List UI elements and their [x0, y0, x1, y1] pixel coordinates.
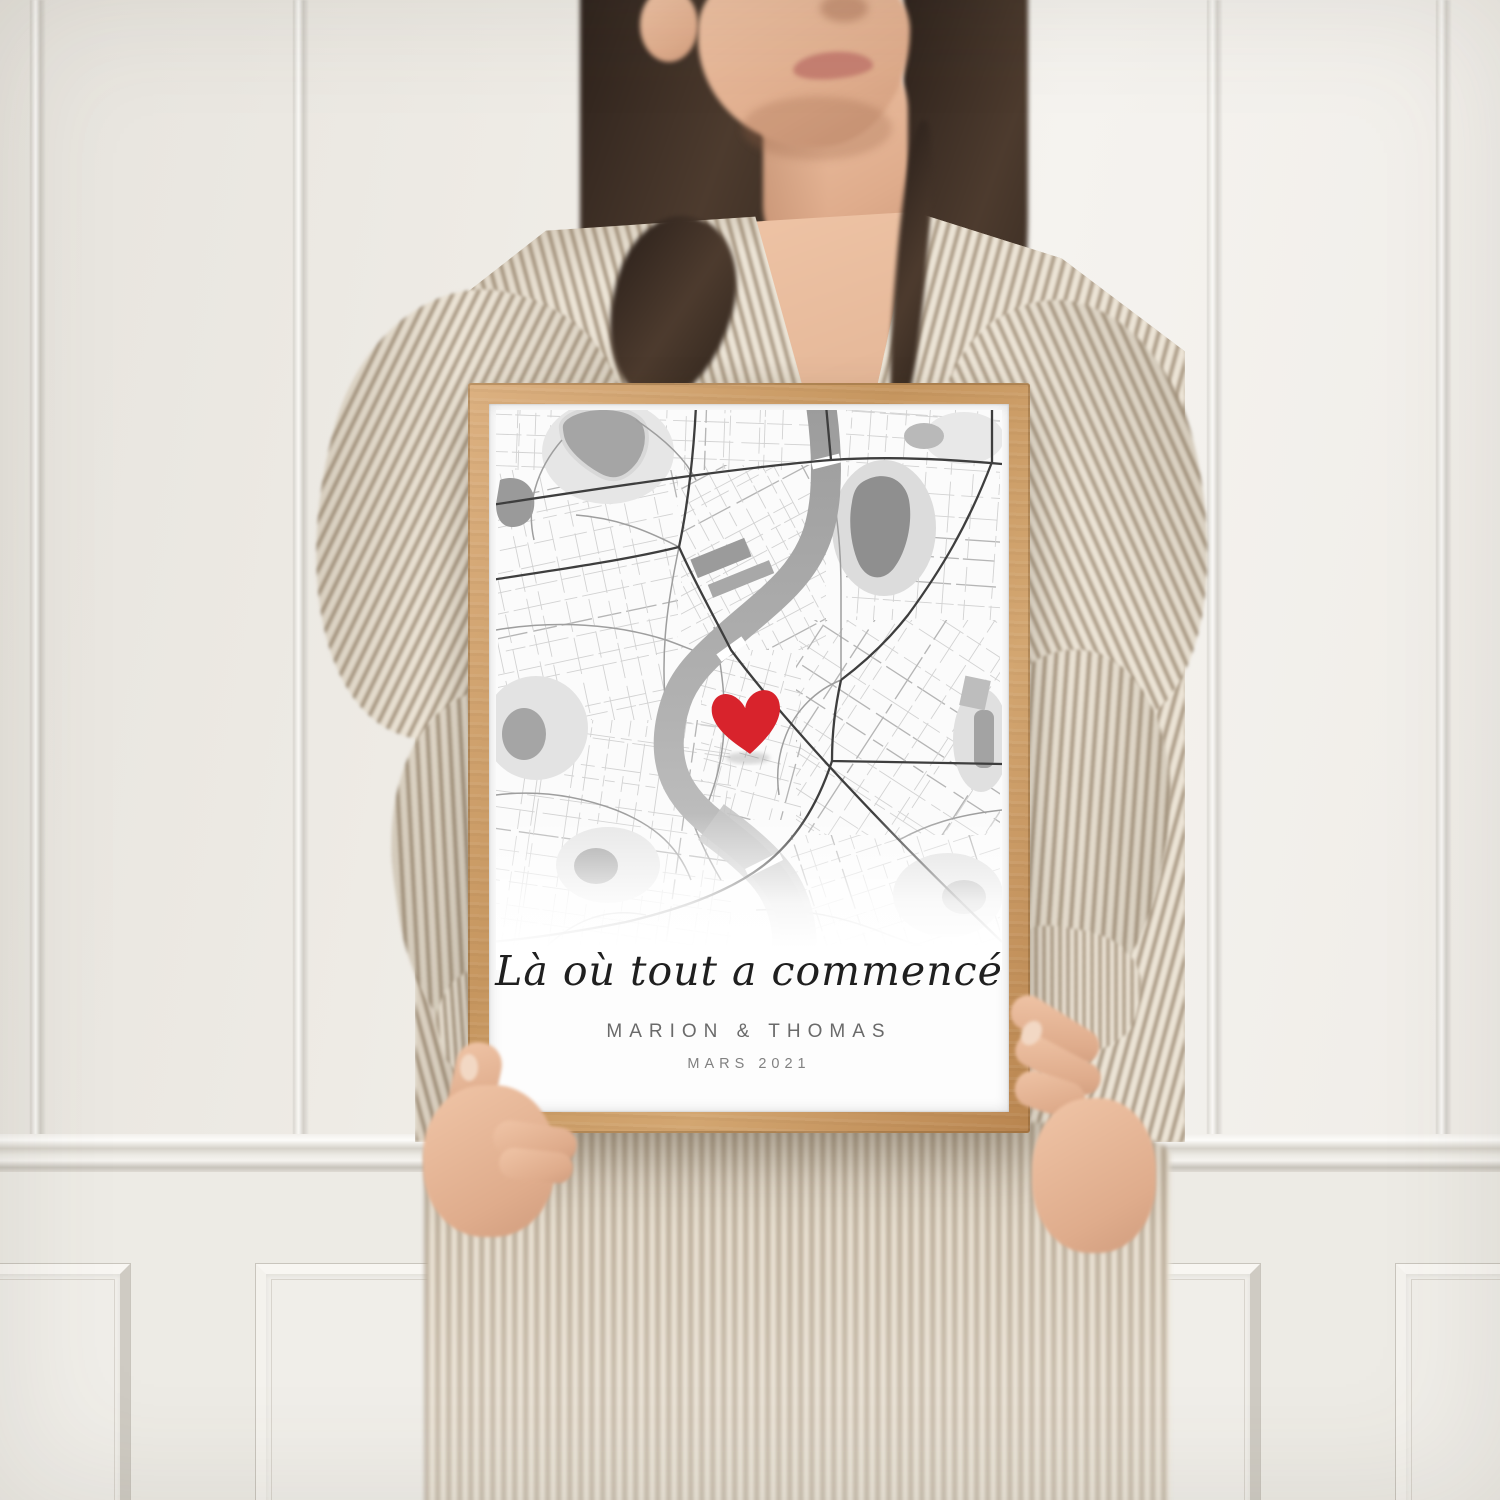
poster-couple-names: MARION & THOMAS	[489, 1021, 1009, 1043]
right-palm	[1032, 1098, 1156, 1253]
map-bottom-fade	[496, 410, 1002, 970]
wainscot-panel	[1396, 1264, 1500, 1500]
poster-date: MARS 2021	[489, 1056, 1009, 1072]
wall-molding-left-1	[30, 0, 46, 1140]
wall-molding-right-1	[1207, 0, 1223, 1140]
wall-molding-right-2	[1436, 0, 1452, 1140]
jaw-shadow	[742, 96, 892, 160]
photo-scene: Là où tout a commencé MARION & THOMAS MA…	[0, 0, 1500, 1500]
map-poster: Là où tout a commencé MARION & THOMAS MA…	[489, 404, 1009, 1112]
picture-frame: Là où tout a commencé MARION & THOMAS MA…	[468, 383, 1030, 1133]
wall-molding-left-2	[293, 0, 309, 1140]
poster-title-script: Là où tout a commencé	[489, 940, 1009, 1002]
wainscot-panel	[0, 1264, 130, 1500]
city-map	[496, 410, 1002, 970]
left-thumbnail	[460, 1054, 478, 1081]
